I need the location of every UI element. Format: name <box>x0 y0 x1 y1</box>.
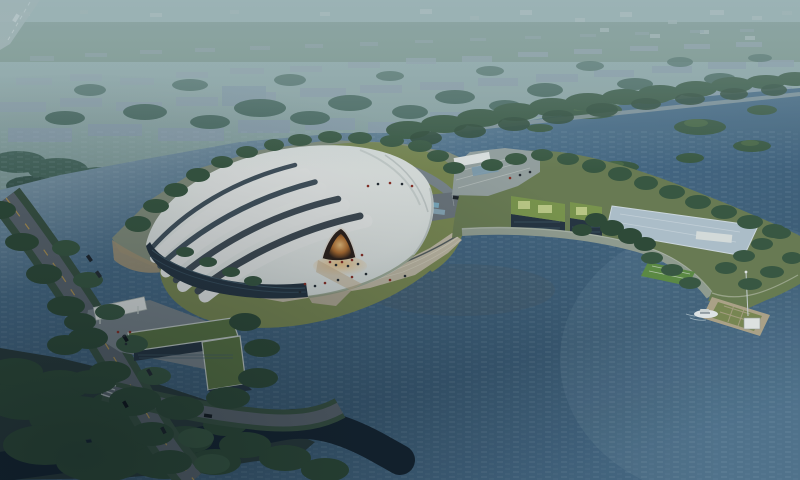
corner-vignette <box>0 0 800 480</box>
atmosphere <box>0 0 800 480</box>
architectural-rendering <box>0 0 800 480</box>
